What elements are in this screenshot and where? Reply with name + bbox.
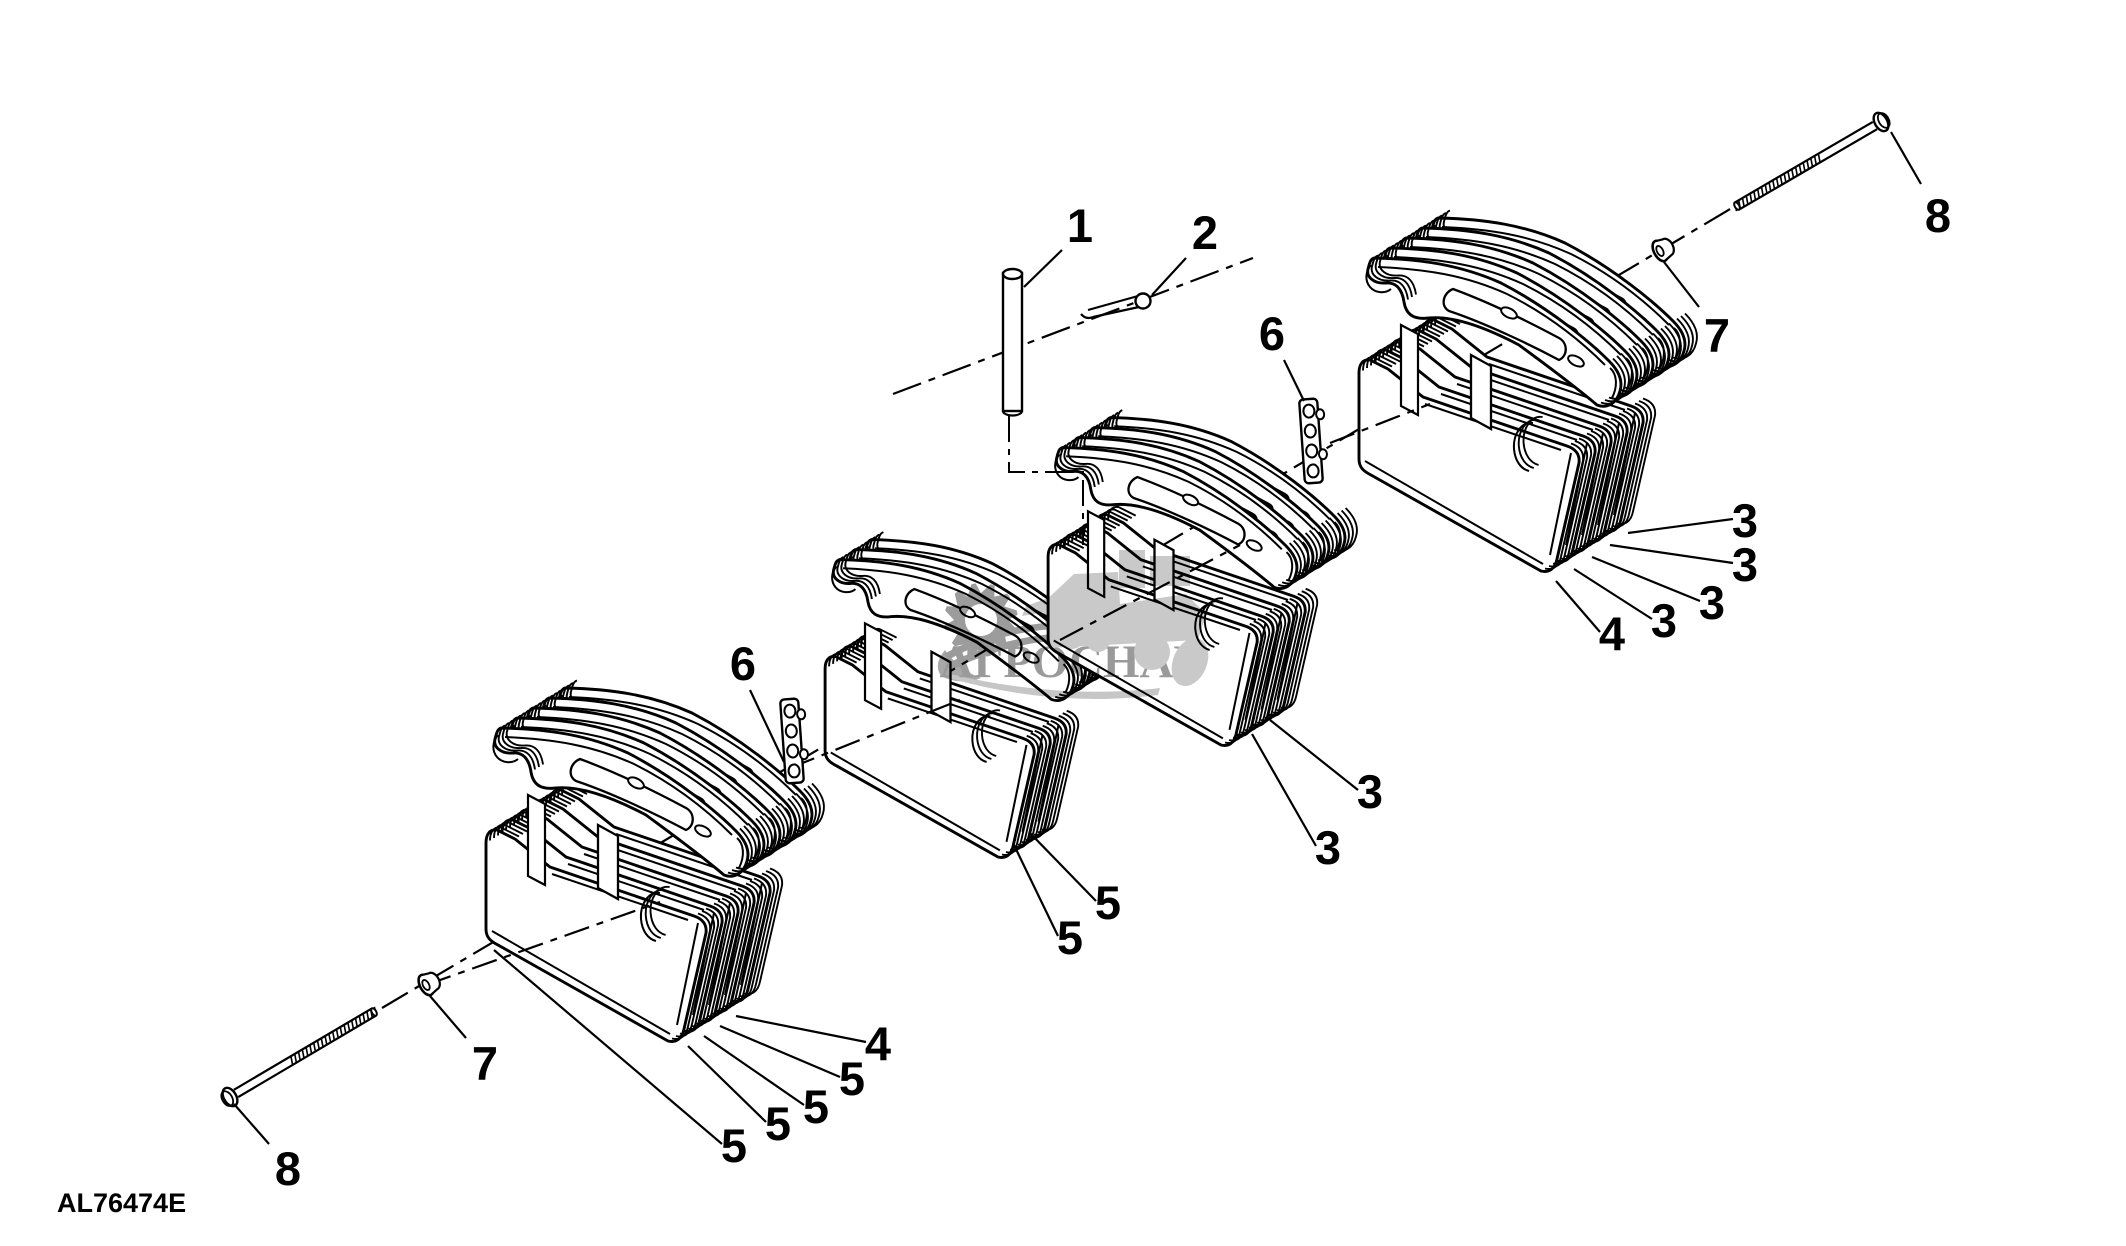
svg-text:5: 5 bbox=[1095, 876, 1121, 929]
svg-text:6: 6 bbox=[1259, 307, 1285, 360]
svg-text:2: 2 bbox=[1192, 206, 1218, 259]
svg-text:4: 4 bbox=[1599, 607, 1625, 660]
svg-text:5: 5 bbox=[721, 1119, 747, 1172]
svg-text:1: 1 bbox=[1067, 199, 1093, 252]
svg-text:3: 3 bbox=[1315, 821, 1341, 874]
svg-text:3: 3 bbox=[1732, 494, 1758, 547]
svg-text:4: 4 bbox=[865, 1017, 891, 1070]
svg-text:5: 5 bbox=[1057, 911, 1083, 964]
svg-text:5: 5 bbox=[765, 1097, 791, 1150]
svg-text:5: 5 bbox=[839, 1052, 865, 1105]
svg-text:3: 3 bbox=[1357, 765, 1383, 818]
svg-text:7: 7 bbox=[472, 1037, 498, 1090]
svg-text:3: 3 bbox=[1699, 576, 1725, 629]
svg-text:8: 8 bbox=[1925, 189, 1951, 242]
svg-text:8: 8 bbox=[275, 1142, 301, 1195]
svg-text:7: 7 bbox=[1704, 309, 1730, 362]
svg-text:AL76474E: AL76474E bbox=[57, 1188, 186, 1218]
svg-text:5: 5 bbox=[803, 1080, 829, 1133]
svg-text:3: 3 bbox=[1651, 594, 1677, 647]
svg-text:6: 6 bbox=[730, 637, 756, 690]
